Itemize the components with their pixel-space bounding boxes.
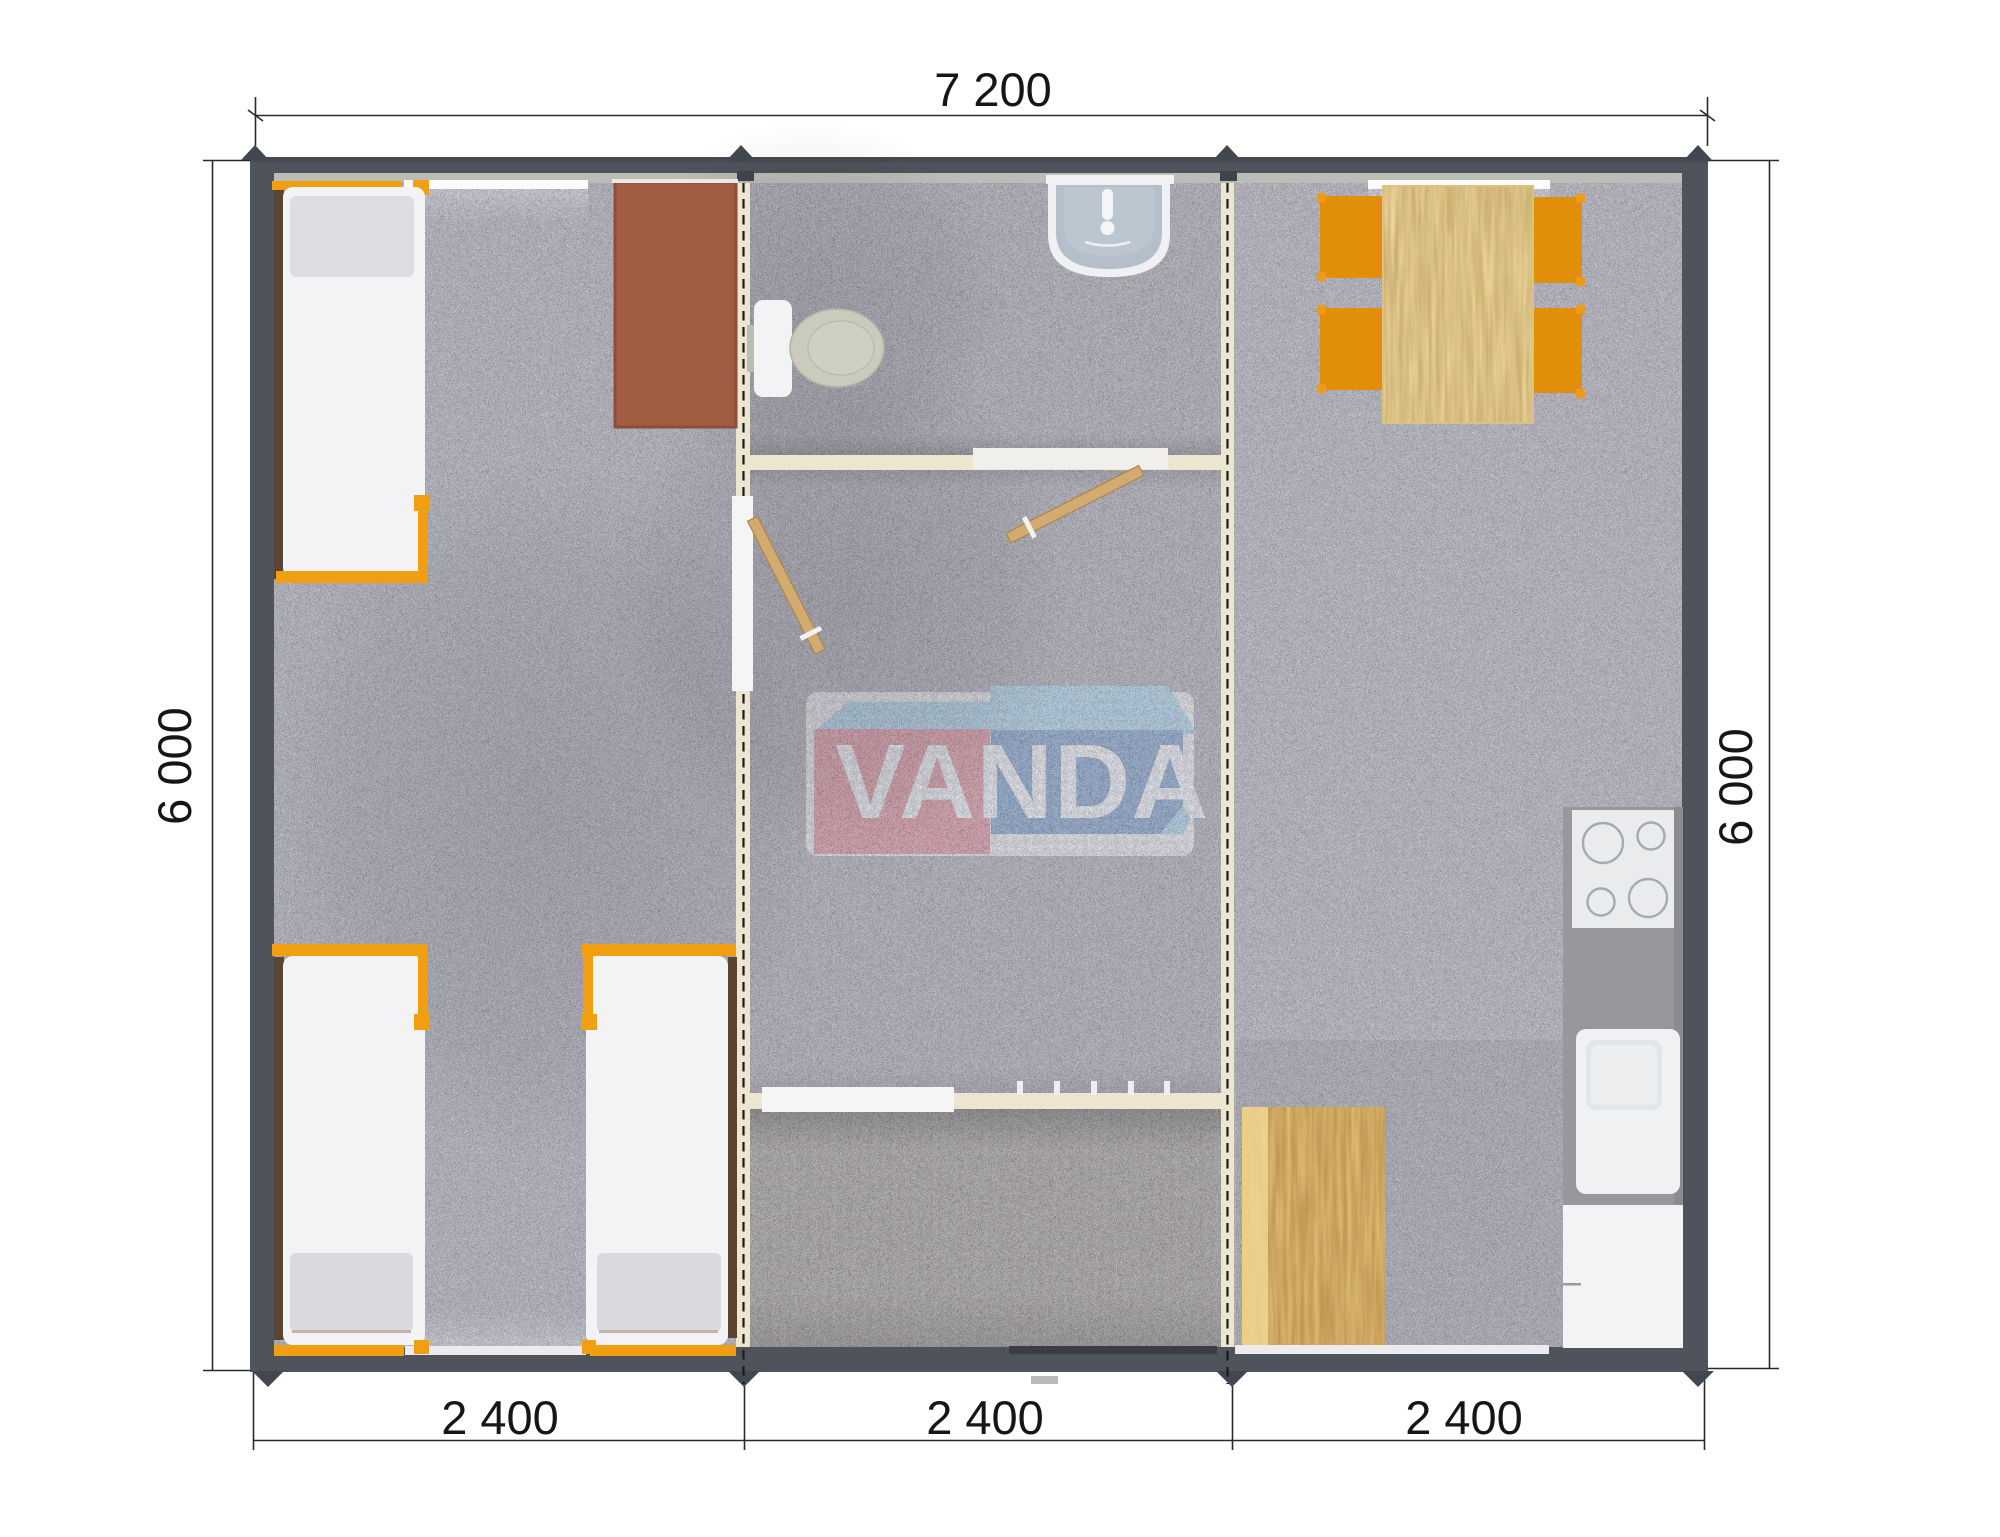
svg-text:2 400: 2 400 [1405,1391,1523,1444]
svg-text:6 000: 6 000 [1709,728,1762,846]
svg-text:7 200: 7 200 [934,63,1052,116]
svg-text:2 400: 2 400 [926,1391,1044,1444]
svg-text:2 400: 2 400 [441,1391,559,1444]
svg-text:6 000: 6 000 [148,707,201,825]
